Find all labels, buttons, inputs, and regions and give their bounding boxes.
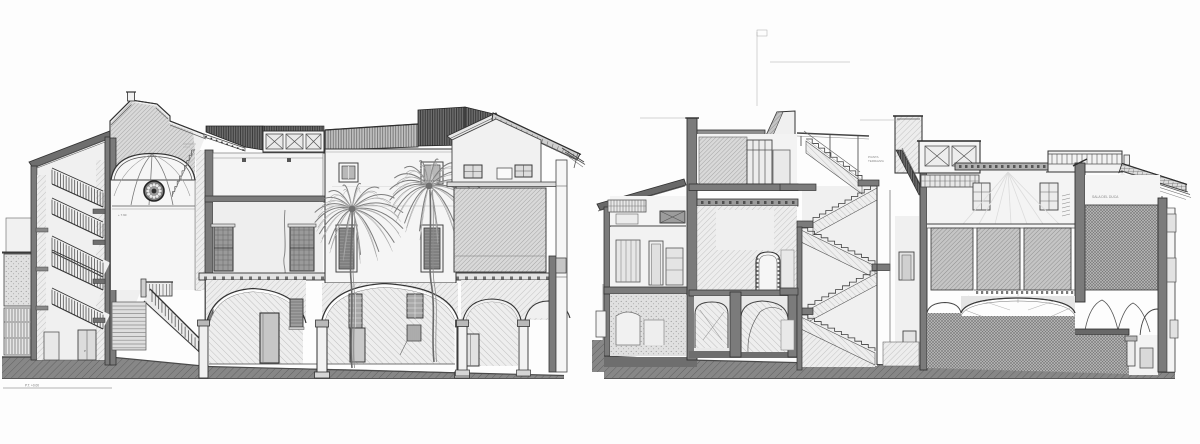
svg-text:P: P [84,349,86,353]
svg-text:P.T. +0.00: P.T. +0.00 [25,384,39,388]
svg-text:SALA DEL DUCA: SALA DEL DUCA [1092,195,1119,199]
svg-text:TERRAZZA: TERRAZZA [868,159,884,163]
svg-text:+ 7.90: + 7.90 [118,213,127,217]
